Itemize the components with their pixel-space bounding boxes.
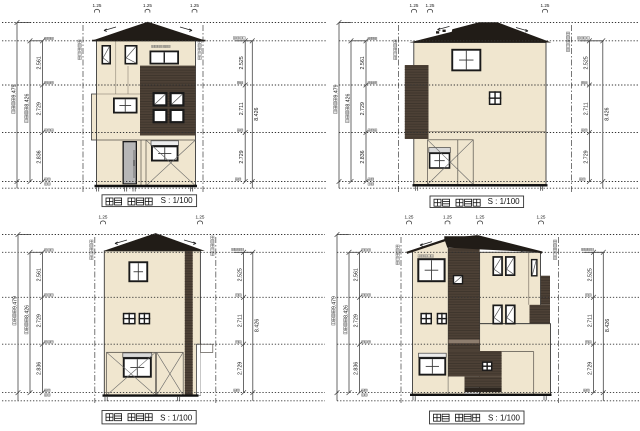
svg-text:S : 1/100: S : 1/100 — [488, 413, 521, 422]
svg-text:2.729: 2.729 — [37, 102, 43, 115]
svg-text:2.561: 2.561 — [360, 56, 366, 69]
svg-text:S : 1/100: S : 1/100 — [160, 413, 193, 422]
svg-text:2.836: 2.836 — [360, 150, 366, 163]
svg-text:1.25: 1.25 — [405, 215, 414, 220]
svg-text:8.426: 8.426 — [344, 305, 350, 318]
svg-text:2.729: 2.729 — [36, 314, 42, 327]
svg-text:2.525: 2.525 — [583, 56, 589, 69]
svg-text:8.426: 8.426 — [346, 94, 352, 107]
svg-text:2.525: 2.525 — [238, 268, 244, 281]
svg-text:2.729: 2.729 — [238, 362, 244, 375]
svg-text:2.711: 2.711 — [583, 102, 589, 115]
svg-text:1.25: 1.25 — [93, 3, 102, 8]
svg-text:1.25: 1.25 — [537, 215, 546, 220]
svg-text:1.25: 1.25 — [410, 3, 419, 8]
svg-text:S : 1/100: S : 1/100 — [488, 197, 521, 206]
svg-text:1.25: 1.25 — [443, 215, 452, 220]
svg-text:8.426: 8.426 — [254, 107, 260, 120]
svg-text:2.729: 2.729 — [360, 102, 366, 115]
svg-text:2.711: 2.711 — [239, 102, 245, 115]
svg-text:S : 1/100: S : 1/100 — [161, 196, 194, 205]
svg-text:8.426: 8.426 — [25, 305, 31, 318]
svg-text:2.836: 2.836 — [354, 362, 360, 375]
svg-text:1.25: 1.25 — [541, 3, 550, 8]
svg-text:2.561: 2.561 — [354, 268, 360, 281]
svg-text:2.836: 2.836 — [37, 150, 43, 163]
svg-text:9.479: 9.479 — [332, 296, 338, 309]
svg-text:9.479: 9.479 — [334, 84, 340, 97]
svg-text:2.729: 2.729 — [239, 150, 245, 163]
svg-text:2.525: 2.525 — [588, 268, 594, 281]
svg-text:1.25: 1.25 — [99, 215, 108, 220]
svg-text:2.729: 2.729 — [354, 314, 360, 327]
svg-text:2.525: 2.525 — [239, 56, 245, 69]
svg-text:1.25: 1.25 — [196, 215, 205, 220]
svg-text:8.426: 8.426 — [25, 94, 31, 107]
svg-text:1.25: 1.25 — [476, 215, 485, 220]
svg-text:8.426: 8.426 — [254, 319, 260, 332]
svg-text:8.426: 8.426 — [604, 107, 610, 120]
svg-text:8.426: 8.426 — [605, 319, 611, 332]
svg-text:2.561: 2.561 — [36, 268, 42, 281]
svg-text:9.479: 9.479 — [13, 296, 19, 309]
svg-text:2.711: 2.711 — [588, 314, 594, 327]
svg-text:2.711: 2.711 — [238, 314, 244, 327]
svg-text:2.836: 2.836 — [36, 362, 42, 375]
svg-text:2.561: 2.561 — [37, 56, 43, 69]
svg-text:9.479: 9.479 — [12, 84, 18, 97]
svg-text:1.25: 1.25 — [190, 3, 199, 8]
svg-text:2.729: 2.729 — [588, 362, 594, 375]
svg-text:1.25: 1.25 — [426, 3, 435, 8]
svg-text:2.729: 2.729 — [583, 150, 589, 163]
svg-text:1.25: 1.25 — [143, 3, 152, 8]
